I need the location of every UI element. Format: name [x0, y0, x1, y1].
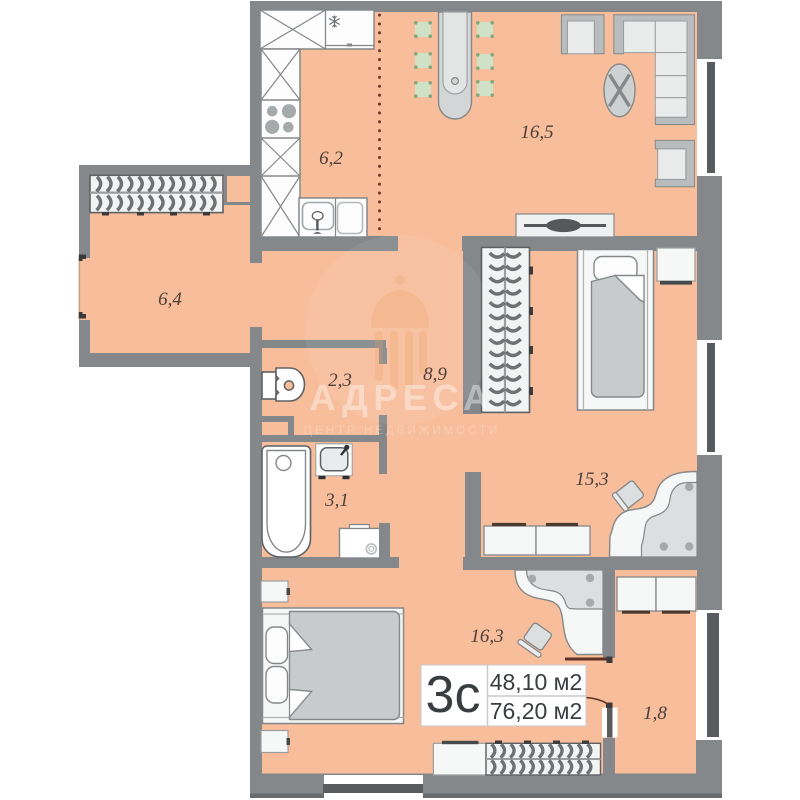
svg-text:76,20 м2: 76,20 м2 [490, 698, 583, 724]
svg-text:1,8: 1,8 [643, 703, 667, 724]
svg-text:3,1: 3,1 [324, 490, 349, 511]
svg-text:16,5: 16,5 [520, 122, 553, 143]
svg-text:8,9: 8,9 [423, 364, 447, 385]
svg-text:48,10 м2: 48,10 м2 [490, 669, 583, 695]
svg-text:2,3: 2,3 [328, 370, 352, 391]
svg-text:3с: 3с [426, 666, 481, 724]
svg-text:16,3: 16,3 [470, 626, 503, 647]
svg-text:15,3: 15,3 [575, 469, 608, 490]
svg-text:ЦЕНТР НЕДВИЖИМОСТИ: ЦЕНТР НЕДВИЖИМОСТИ [304, 425, 501, 437]
svg-text:6,2: 6,2 [319, 148, 343, 169]
svg-text:6,4: 6,4 [158, 289, 182, 310]
